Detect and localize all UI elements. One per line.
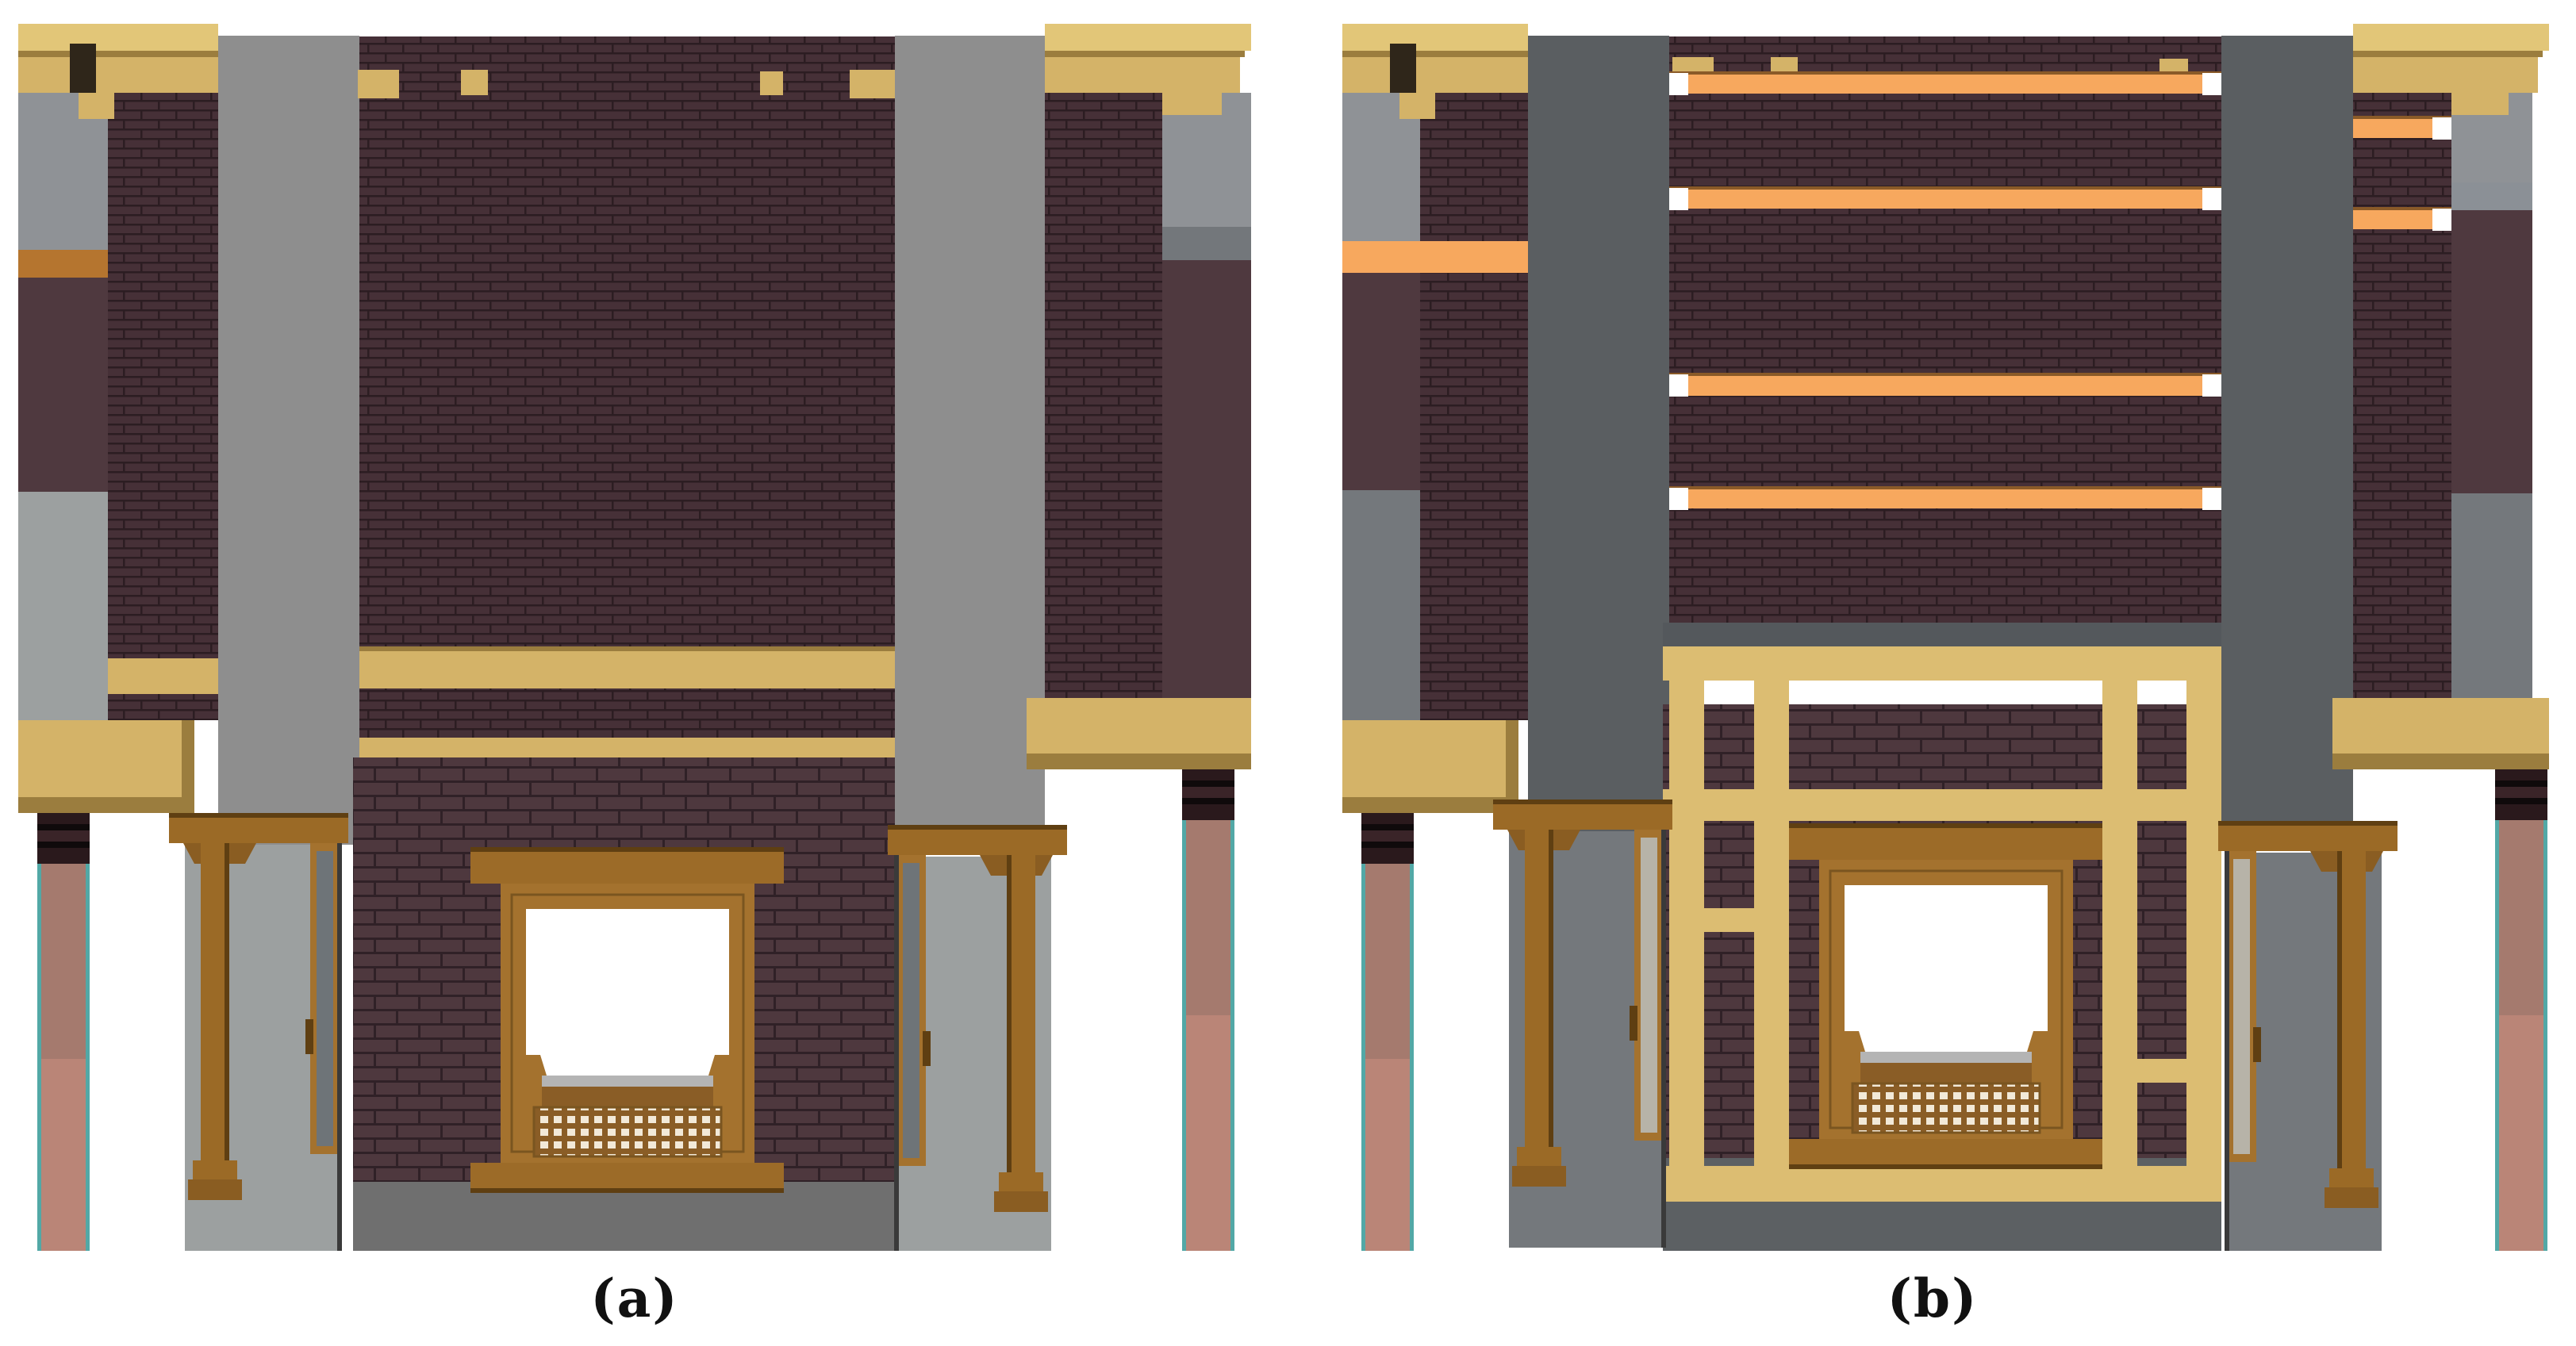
timber-band-orange	[1420, 241, 1528, 273]
panel-a-brick-bay-right	[1045, 93, 1162, 698]
panel-b-ledge-left	[1342, 720, 1518, 813]
panel-b-right-return	[2451, 93, 2532, 698]
panel-a-ledge-right	[1027, 698, 1251, 769]
panel-a-brick-bay-left	[108, 93, 218, 720]
panel-a-column-right	[1182, 769, 1234, 1251]
panel-b-elevation	[1342, 24, 2549, 1251]
panel-a-lattice-window	[470, 847, 784, 1193]
panel-a-porch-left	[169, 813, 348, 1251]
panel-b-porch-right	[2218, 821, 2397, 1251]
panel-b-lattice-window	[1789, 823, 2102, 1169]
panel-b-porch-left	[1493, 800, 1672, 1248]
panel-b-ledge-right	[2332, 698, 2549, 769]
caption-panel-b: (b)	[1814, 1267, 2052, 1329]
panel-a-pilaster-left	[218, 36, 359, 845]
figure-canvas: (a) (b)	[0, 0, 2576, 1346]
panel-a-ledge-left	[18, 720, 194, 813]
panel-a-column-left	[37, 813, 90, 1251]
panel-b-brick-bay-right	[2353, 73, 2451, 698]
panel-a-right-return	[1162, 93, 1251, 698]
panel-a-porch-right	[888, 825, 1067, 1251]
panel-b-pilaster-left	[1528, 36, 1669, 845]
timber-band-edge	[359, 646, 895, 651]
panel-a-timber-band-thick	[359, 651, 895, 688]
panel-b-column-right	[2495, 769, 2547, 1251]
caption-panel-a: (a)	[516, 1267, 754, 1329]
panel-b-central-bay	[1663, 36, 2221, 646]
panel-b-column-left	[1361, 813, 1414, 1251]
panel-a-elevation	[18, 24, 1251, 1251]
panel-a-timber-band-thin	[359, 738, 895, 757]
panel-a-central-bay	[358, 36, 895, 757]
panel-b-left-return	[1342, 93, 1420, 720]
panel-b-brick-bay-left	[1420, 93, 1528, 720]
panel-a-pilaster-right	[895, 36, 1045, 845]
panel-a-left-return	[18, 93, 108, 720]
